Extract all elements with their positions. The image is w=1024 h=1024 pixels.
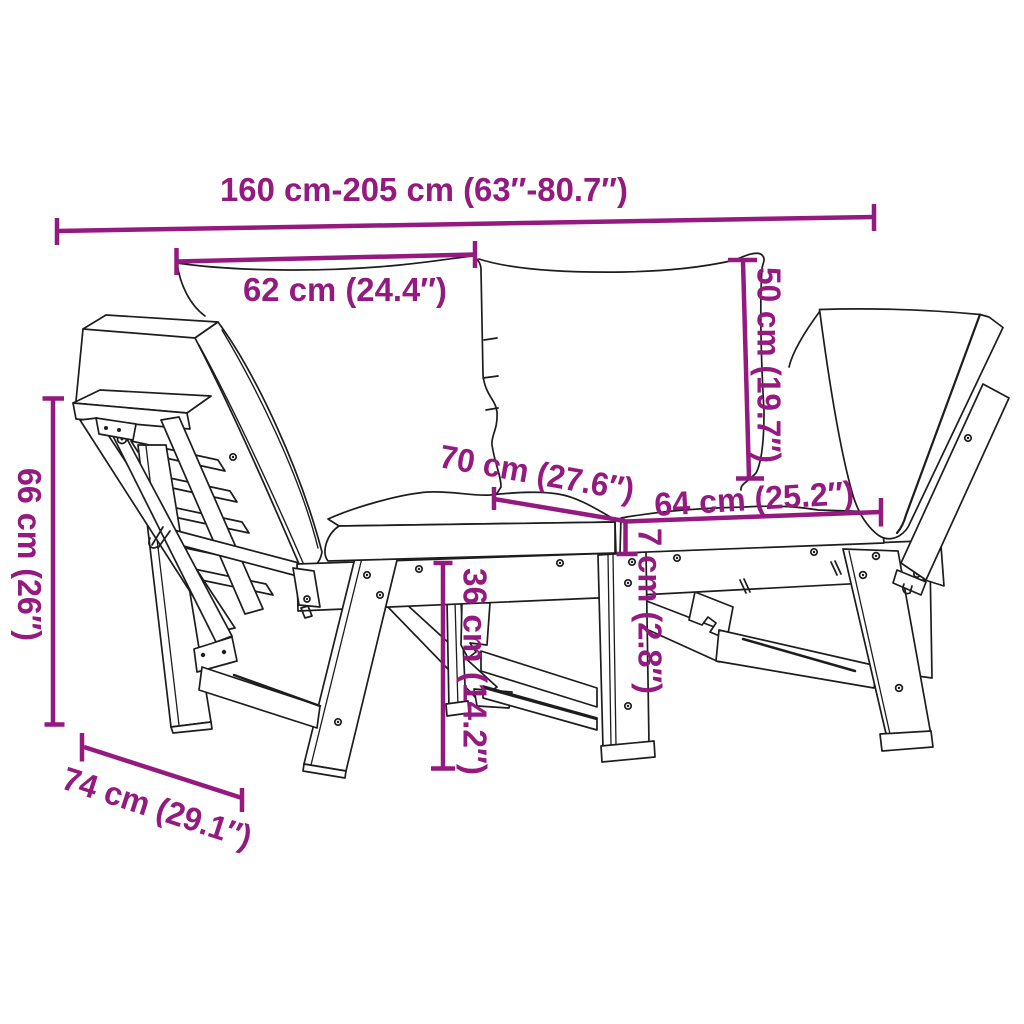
- svg-text:7 cm (2.8″): 7 cm (2.8″): [632, 528, 669, 694]
- svg-text:36 cm (14.2″): 36 cm (14.2″): [457, 568, 494, 775]
- svg-text:62 cm (24.4″): 62 cm (24.4″): [243, 271, 447, 308]
- svg-text:66 cm (26″): 66 cm (26″): [11, 468, 48, 641]
- svg-text:50 cm (19.7″): 50 cm (19.7″): [751, 267, 788, 463]
- svg-text:160 cm-205 cm (63″-80.7″): 160 cm-205 cm (63″-80.7″): [220, 171, 628, 208]
